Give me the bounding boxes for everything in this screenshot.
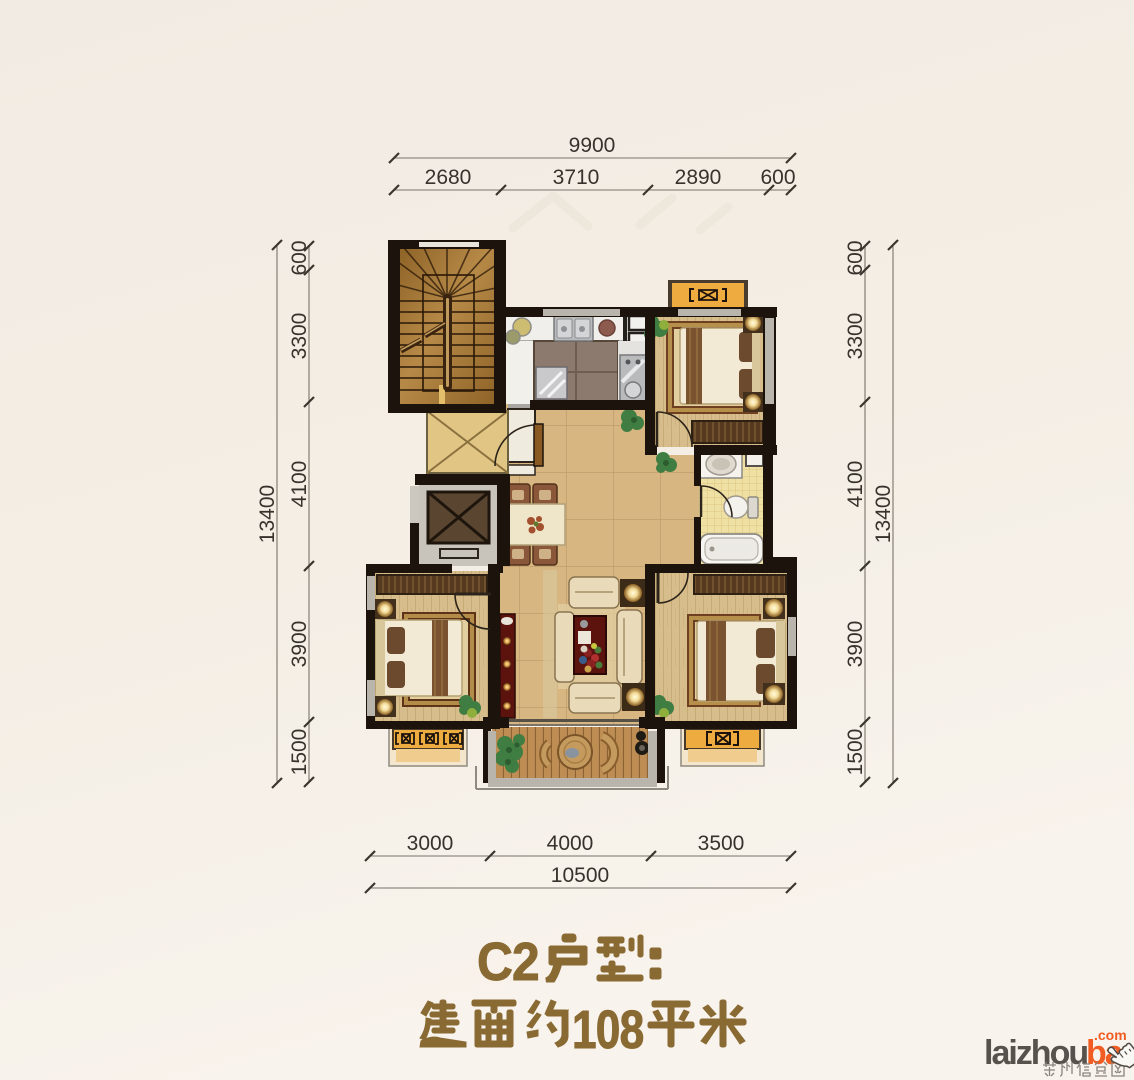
svg-text:3000: 3000 (407, 832, 454, 855)
svg-text:.com: .com (1094, 1027, 1127, 1043)
svg-text:4100: 4100 (288, 461, 311, 508)
svg-text:C2: C2 (477, 931, 539, 991)
svg-text:600: 600 (288, 240, 311, 275)
svg-text:3300: 3300 (844, 313, 867, 360)
svg-text:600: 600 (760, 166, 795, 189)
svg-text:600: 600 (844, 240, 867, 275)
svg-text:3300: 3300 (288, 313, 311, 360)
svg-text:3500: 3500 (698, 832, 745, 855)
svg-text:4000: 4000 (547, 832, 594, 855)
svg-text:3900: 3900 (288, 621, 311, 668)
svg-text:1500: 1500 (844, 729, 867, 776)
svg-text:1500: 1500 (288, 729, 311, 776)
svg-text:2680: 2680 (425, 166, 472, 189)
svg-text:2890: 2890 (675, 166, 722, 189)
svg-text:108: 108 (572, 1000, 643, 1060)
svg-text:3710: 3710 (553, 166, 600, 189)
svg-text:4100: 4100 (844, 461, 867, 508)
svg-text:13400: 13400 (872, 485, 895, 543)
svg-text:9900: 9900 (569, 134, 616, 157)
svg-text:3900: 3900 (844, 621, 867, 668)
svg-text:10500: 10500 (551, 864, 609, 887)
svg-text:13400: 13400 (256, 485, 279, 543)
